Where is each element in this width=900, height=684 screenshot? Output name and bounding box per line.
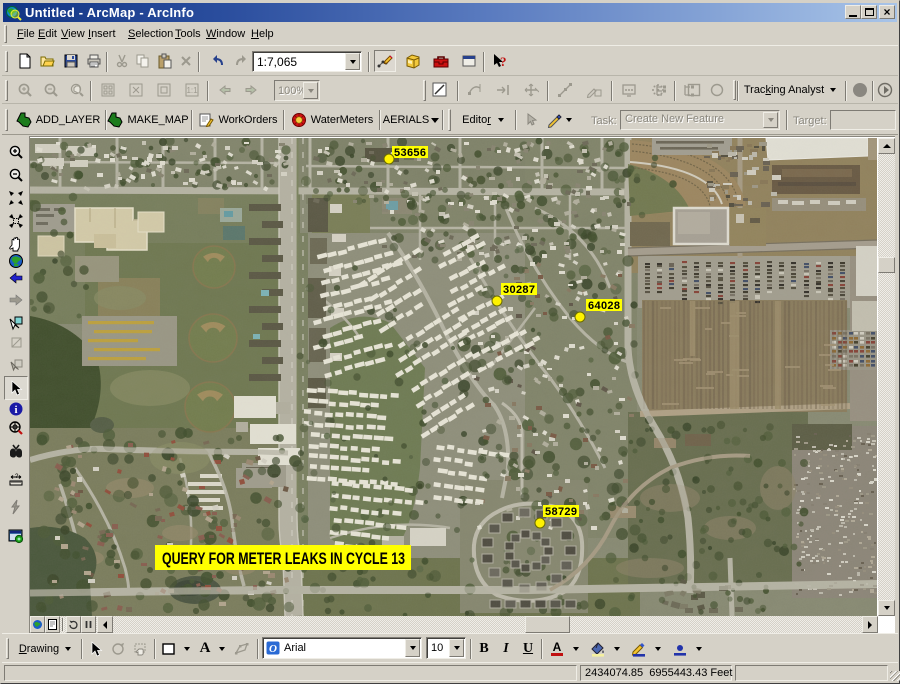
svg-text:QUERY FOR METER LEAKS IN CYCLE: QUERY FOR METER LEAKS IN CYCLE 13	[162, 549, 405, 568]
svg-text:1:1: 1:1	[186, 86, 198, 95]
svg-text:64028: 64028	[588, 300, 620, 312]
svg-text:58729: 58729	[545, 506, 577, 518]
svg-text:O: O	[269, 643, 277, 655]
svg-text:A: A	[553, 641, 562, 654]
svg-text:?: ?	[500, 54, 507, 69]
svg-text:i: i	[14, 404, 17, 416]
svg-text:30287: 30287	[503, 284, 535, 296]
svg-text:53656: 53656	[394, 147, 426, 159]
